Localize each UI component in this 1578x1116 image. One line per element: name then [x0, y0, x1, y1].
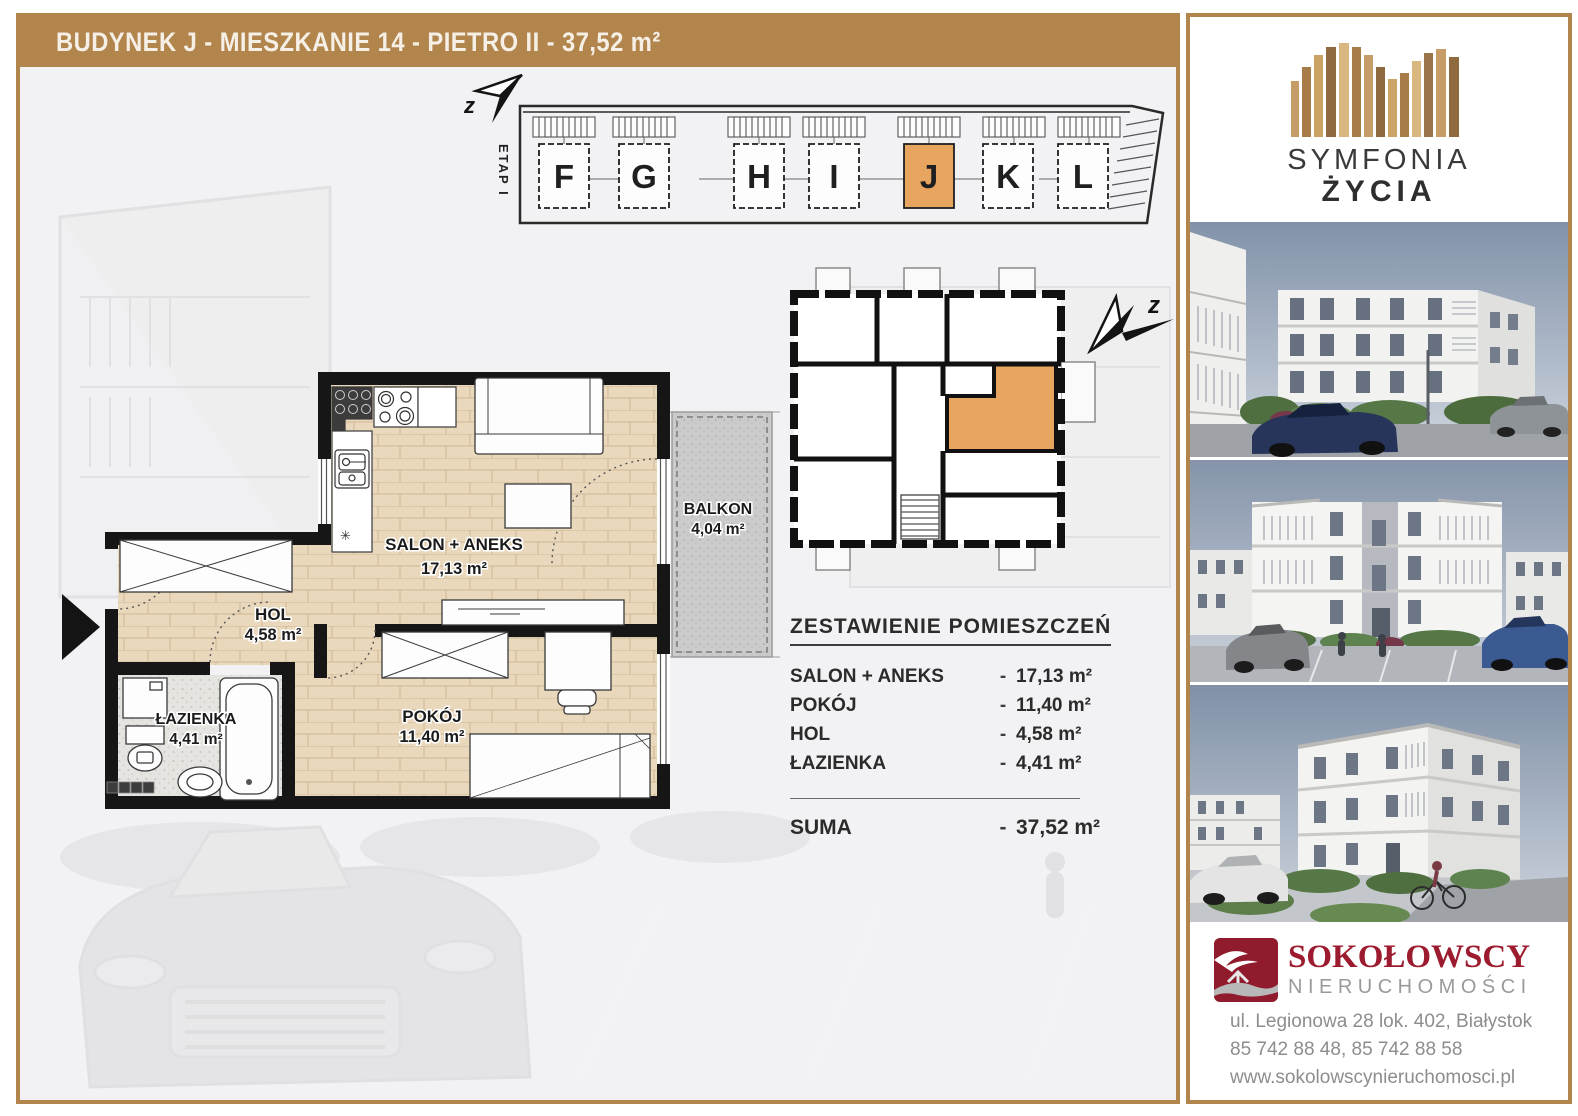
hol-wardrobe: [120, 540, 292, 592]
summary-row: HOL - 4,58 m²: [790, 720, 1180, 749]
brand-block: SYMFONIA ŻYCIA Białystok, ul. Produkcyjn…: [1190, 17, 1568, 217]
summary-row: SALON + ANEKS - 17,13 m²: [790, 662, 1180, 691]
room-summary: ZESTAWIENIE POMIESZCZEŃ SALON + ANEKS - …: [790, 615, 1180, 842]
sidebar: SYMFONIA ŻYCIA Białystok, ul. Produkcyjn…: [1186, 13, 1572, 1104]
label-pokoj: POKÓJ: [402, 707, 462, 726]
brand-name-line2: ŻYCIA: [1190, 175, 1568, 209]
building-K: K: [996, 158, 1020, 195]
building-L: L: [1073, 158, 1093, 195]
site-plan: F G H I J K L: [514, 99, 1174, 239]
parking-strips: [533, 117, 1120, 137]
etap-label: ETAP I: [496, 144, 511, 197]
piano-keys-logo: [1289, 33, 1469, 137]
label-balkon: BALKON: [684, 501, 752, 518]
site-buildings: F G H I J K L: [539, 144, 1108, 208]
svg-text:z: z: [463, 93, 475, 118]
building-J-highlighted: J: [920, 158, 938, 195]
label-salon: SALON + ANEKS: [385, 535, 523, 554]
agency-name: SOKOŁOWSCY: [1288, 941, 1532, 974]
svg-text:✳: ✳: [340, 528, 351, 543]
building-photo-2: [1190, 460, 1568, 682]
agency-subtitle: NIERUCHOMOŚCI: [1288, 976, 1532, 999]
north-arrow-2-icon: z: [1082, 289, 1180, 369]
summary-row: ŁAZIENKA - 4,41 m²: [790, 749, 1180, 778]
building-photo-3: [1190, 685, 1568, 925]
label-hol: HOL: [255, 605, 291, 624]
agency-phones: 85 742 88 48, 85 742 88 58: [1230, 1036, 1568, 1064]
building-F: F: [554, 158, 574, 195]
svg-text:4,41 m²: 4,41 m²: [169, 731, 222, 748]
flyer-main-panel: BUDYNEK J - MIESZKANIE 14 - PIETRO II - …: [16, 13, 1180, 1104]
agency-website: www.sokolowscynieruchomosci.pl: [1230, 1064, 1568, 1092]
apartment-floor-plan: ✳: [90, 362, 780, 822]
svg-text:17,13 m²: 17,13 m²: [421, 560, 488, 578]
page-title: BUDYNEK J - MIESZKANIE 14 - PIETRO II - …: [56, 27, 661, 58]
svg-text:z: z: [1147, 292, 1160, 319]
building-photo-1: [1190, 222, 1568, 457]
agency-block: SOKOŁOWSCY NIERUCHOMOŚCI ul. Legionowa 2…: [1190, 922, 1568, 1100]
svg-text:4,04 m²: 4,04 m²: [691, 521, 744, 538]
brand-name-line1: SYMFONIA: [1190, 144, 1568, 177]
svg-text:4,58 m²: 4,58 m²: [245, 626, 302, 644]
agency-logo-icon: [1214, 938, 1278, 1002]
label-lazienka: ŁAZIENKA: [156, 711, 237, 728]
svg-text:11,40 m²: 11,40 m²: [399, 728, 465, 746]
key-plan: [765, 259, 1105, 589]
building-I: I: [829, 158, 838, 195]
title-bar: BUDYNEK J - MIESZKANIE 14 - PIETRO II - …: [20, 17, 1176, 67]
summary-title: ZESTAWIENIE POMIESZCZEŃ: [790, 615, 1111, 646]
key-plan-stairs: [901, 495, 939, 539]
building-G: G: [631, 158, 657, 195]
summary-divider: [790, 798, 1080, 799]
agency-address: ul. Legionowa 28 lok. 402, Białystok: [1230, 1008, 1568, 1036]
summary-total-row: SUMA - 37,52 m²: [790, 813, 1180, 842]
building-H: H: [747, 158, 771, 195]
summary-row: POKÓJ - 11,40 m²: [790, 691, 1180, 720]
